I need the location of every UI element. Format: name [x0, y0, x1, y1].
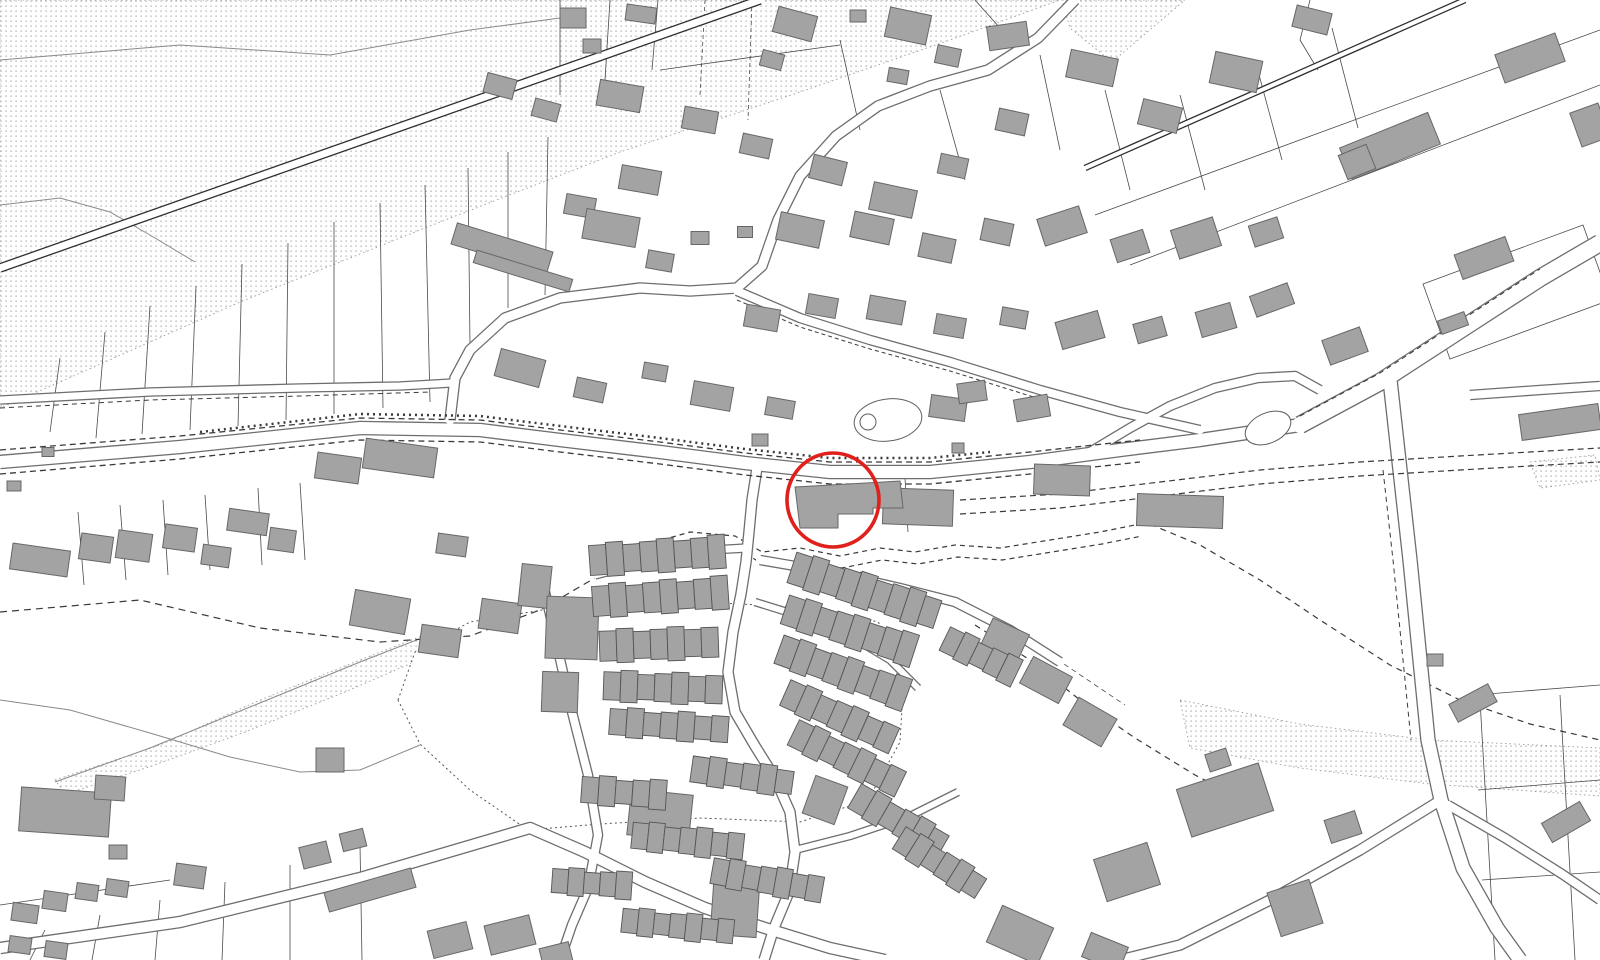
terraced-building: [622, 544, 641, 572]
terraced-building: [650, 629, 668, 660]
terraced-building: [615, 871, 633, 900]
building: [162, 524, 197, 552]
building: [268, 527, 297, 552]
terraced-building: [676, 711, 695, 742]
building: [174, 863, 207, 889]
terraced-building: [684, 629, 702, 657]
terraced-building: [567, 868, 585, 897]
terraced-building: [710, 575, 729, 610]
terraced-building: [671, 672, 689, 705]
terraced-building: [688, 676, 706, 702]
terraced-building: [690, 537, 709, 568]
terraced-building: [632, 780, 651, 807]
terraced-building: [643, 712, 662, 736]
building: [8, 936, 32, 955]
terraced-building: [653, 913, 671, 936]
terraced-building: [603, 672, 621, 701]
terraced-building: [660, 712, 679, 739]
terraced-building: [667, 626, 685, 661]
terraced-building: [707, 534, 726, 569]
terraced-building: [705, 675, 723, 704]
building: [625, 4, 657, 24]
terraced-building: [673, 540, 692, 568]
building: [314, 452, 361, 484]
terraced-building: [633, 631, 651, 659]
terraced-building: [684, 913, 703, 943]
terraced-building: [639, 541, 658, 572]
terraced-building: [648, 779, 667, 810]
building: [545, 596, 599, 660]
building: [11, 902, 39, 923]
building: [691, 232, 709, 245]
building: [316, 748, 344, 772]
building: [115, 530, 153, 562]
building: [957, 380, 988, 404]
building: [642, 362, 668, 382]
building: [44, 941, 68, 960]
terraced-building: [676, 581, 695, 609]
building: [201, 544, 232, 568]
building: [887, 67, 909, 84]
terraced-building: [668, 913, 686, 939]
building: [75, 883, 99, 902]
terraced-building: [642, 582, 661, 613]
terraced-building: [597, 776, 616, 807]
building: [1033, 464, 1090, 496]
building: [94, 775, 126, 801]
terraced-building: [693, 578, 712, 609]
building: [1000, 307, 1029, 329]
map-viewport[interactable]: [0, 0, 1600, 960]
terraced-building: [551, 868, 569, 893]
terraced-building: [710, 832, 728, 857]
terraced-building: [631, 822, 650, 850]
terraced-building: [663, 827, 681, 852]
building: [952, 443, 964, 453]
building: [1427, 654, 1443, 666]
building: [436, 533, 468, 557]
building: [78, 533, 113, 563]
building: [738, 227, 753, 238]
terraced-building: [608, 582, 627, 617]
terraced-building: [654, 674, 672, 703]
terraced-building: [656, 538, 675, 573]
terraced-building: [615, 780, 634, 804]
building: [646, 250, 675, 272]
building: [752, 434, 768, 446]
building: [105, 879, 129, 898]
terraced-building: [694, 716, 713, 740]
map-canvas: [0, 0, 1600, 960]
terraced-building: [774, 769, 794, 794]
terraced-building: [625, 585, 644, 613]
building: [478, 598, 522, 633]
building: [418, 624, 462, 657]
building: [541, 671, 578, 712]
terraced-building: [599, 631, 617, 662]
building: [560, 8, 586, 28]
terraced-building: [701, 918, 719, 941]
terraced-building: [625, 708, 644, 739]
building: [583, 39, 601, 53]
building: [7, 481, 21, 491]
building: [109, 845, 127, 859]
terraced-building: [588, 544, 607, 575]
terraced-building: [605, 541, 624, 576]
building: [850, 10, 866, 22]
building: [42, 448, 54, 457]
terraced-building: [599, 872, 617, 897]
terraced-building: [581, 776, 600, 803]
terraced-building: [620, 670, 638, 703]
building: [42, 890, 68, 911]
terraced-building: [616, 628, 634, 663]
cadastral-map: [0, 0, 1600, 960]
terraced-building: [701, 627, 719, 658]
terraced-building: [659, 579, 678, 614]
building: [1136, 494, 1223, 529]
terraced-building: [710, 716, 729, 743]
terraced-building: [716, 918, 734, 944]
terraced-building: [621, 908, 639, 934]
terraced-building: [609, 708, 628, 735]
terraced-building: [726, 832, 745, 860]
terraced-building: [583, 872, 600, 894]
terraced-building: [678, 827, 697, 855]
terraced-building: [591, 585, 610, 616]
building: [987, 21, 1030, 50]
terraced-building: [637, 674, 655, 700]
